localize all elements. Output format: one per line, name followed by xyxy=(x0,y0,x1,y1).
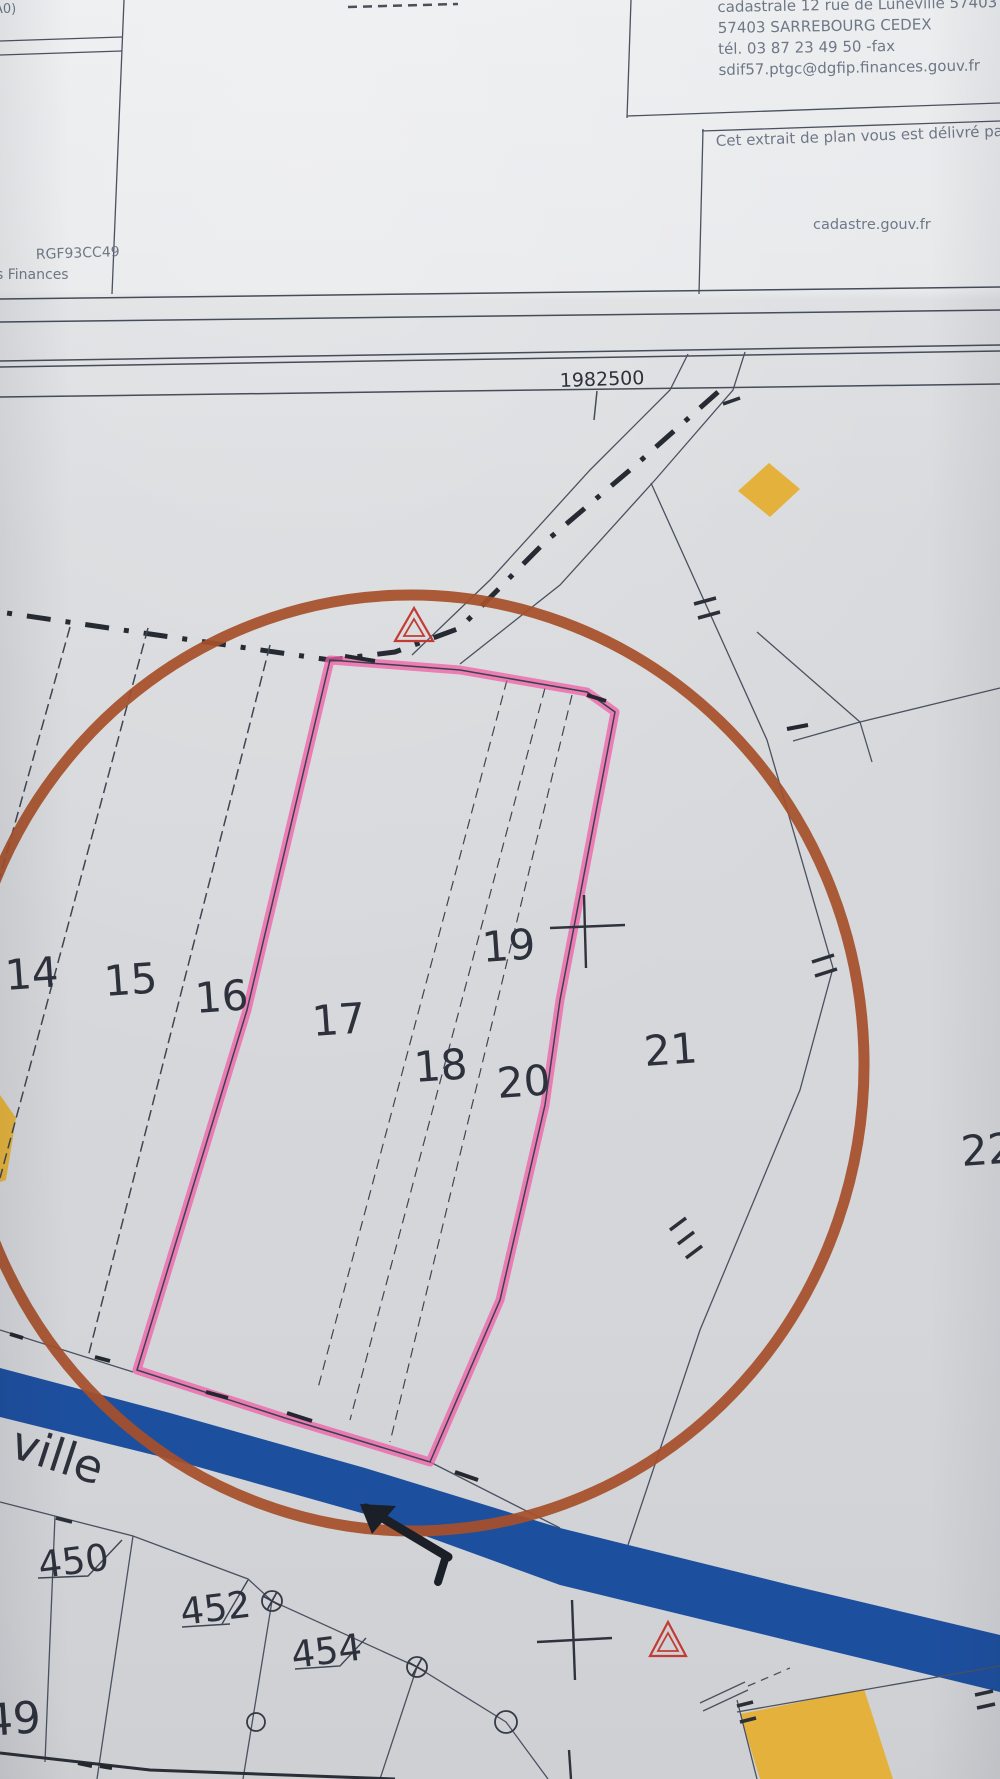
address-box-bottom-border xyxy=(627,103,1000,116)
ne-parcel-line xyxy=(860,722,872,762)
east-boundary-line xyxy=(628,483,833,1545)
survey-cross-icon xyxy=(537,1600,612,1680)
river-band xyxy=(0,1368,1000,1692)
parcel-divider xyxy=(380,1667,417,1779)
boundary-tick xyxy=(100,1766,112,1768)
grid-tick xyxy=(594,391,597,420)
east-boundaries xyxy=(628,483,1000,1545)
boundary-tick xyxy=(10,1334,23,1338)
projection-label: RGF93CC49 xyxy=(36,244,120,263)
parcel-label-20: 20 xyxy=(495,1055,552,1108)
boundary-tick xyxy=(787,725,808,729)
ne-parcel-line xyxy=(757,632,860,722)
boundary-hash xyxy=(678,1232,694,1244)
geodetic-triangle-icon xyxy=(650,1622,686,1656)
parcel-label-19: 19 xyxy=(480,919,537,972)
boundary-hash xyxy=(737,1702,753,1706)
boundary-hash xyxy=(975,1691,993,1695)
left-box-rule-1 xyxy=(0,37,122,41)
grid-coordinate-label: 1982500 xyxy=(559,367,644,392)
parcel-label-450: 450 xyxy=(36,1536,111,1587)
address-line: sdif57.ptgc@dgfip.finances.gouv.fr xyxy=(718,56,981,79)
left-box-rule-2 xyxy=(0,51,122,55)
address-line: tél. 03 87 23 49 50 -fax xyxy=(718,37,895,58)
parcel-label-452: 452 xyxy=(178,1583,253,1634)
parcel-label-21: 21 xyxy=(642,1023,699,1076)
boundary-hash xyxy=(670,1218,686,1230)
cadastral-map: A0) RGF93CC49 s Finances cadastrale 12 r… xyxy=(0,0,1000,1779)
ministry-label: s Finances xyxy=(0,267,69,283)
parcel-label-18: 18 xyxy=(412,1039,469,1092)
cadastral-plan-photo: A0) RGF93CC49 s Finances cadastrale 12 r… xyxy=(0,0,1000,1779)
parcel-label-22-partial: 22 xyxy=(959,1123,1000,1176)
survey-cross-partial-icon xyxy=(569,1750,571,1779)
se-parcel-dashed-line xyxy=(748,1668,790,1686)
road xyxy=(0,352,745,664)
strip-line xyxy=(0,628,148,1178)
delivery-note: Cet extrait de plan vous est délivré pa xyxy=(716,122,1000,150)
parcel-label-16: 16 xyxy=(193,970,250,1023)
corner-note: A0) xyxy=(0,2,16,17)
address-line: cadastrale 12 rue de Lunéville 57403 xyxy=(717,0,997,16)
yellow-parcel-diamond xyxy=(738,463,800,517)
delivery-box-left-border xyxy=(699,129,703,294)
parcel-label-454: 454 xyxy=(289,1626,364,1677)
ne-parcel-line xyxy=(860,688,1000,722)
website-label: cadastre.gouv.fr xyxy=(813,217,931,233)
boundary-hash xyxy=(56,1518,72,1522)
map-frame: 1982500 xyxy=(0,345,1000,420)
header-area: A0) RGF93CC49 s Finances cadastrale 12 r… xyxy=(0,0,1000,322)
parcel-label-49: 49 xyxy=(0,1692,43,1747)
boundary-hash xyxy=(686,1246,702,1258)
header-rule-1 xyxy=(0,287,1000,299)
neatline xyxy=(0,384,1000,397)
circle-marker-icon xyxy=(247,1713,265,1731)
top-dashed-line xyxy=(348,4,458,7)
road-edge-left xyxy=(412,354,688,655)
geodetic-triangle-icon xyxy=(395,608,433,641)
boundary-hash xyxy=(977,1704,995,1708)
parcel-label-17: 17 xyxy=(310,993,367,1046)
office-address: cadastrale 12 rue de Lunéville 57403 574… xyxy=(717,0,998,79)
address-line: 57403 SARREBOURG CEDEX xyxy=(718,15,932,37)
header-rule-2 xyxy=(0,310,1000,322)
circled-cross-marker-icon xyxy=(407,1657,427,1677)
survey-markers xyxy=(247,608,686,1779)
se-parcel-line xyxy=(700,1682,745,1703)
parcel-label-15: 15 xyxy=(102,953,159,1006)
bottom-boundary-line xyxy=(0,1753,395,1779)
se-parcel-line xyxy=(703,1690,748,1711)
address-box-left-border xyxy=(627,0,631,118)
boundary-hash xyxy=(815,969,837,976)
parcel-label-14: 14 xyxy=(3,947,60,1000)
survey-cross-icon xyxy=(550,895,625,968)
parcel-divider xyxy=(243,1601,272,1779)
circled-cross-marker-icon xyxy=(262,1591,282,1611)
road-centerline-dashdot xyxy=(0,392,718,660)
yellow-parcel-bottom-right xyxy=(740,1689,893,1779)
